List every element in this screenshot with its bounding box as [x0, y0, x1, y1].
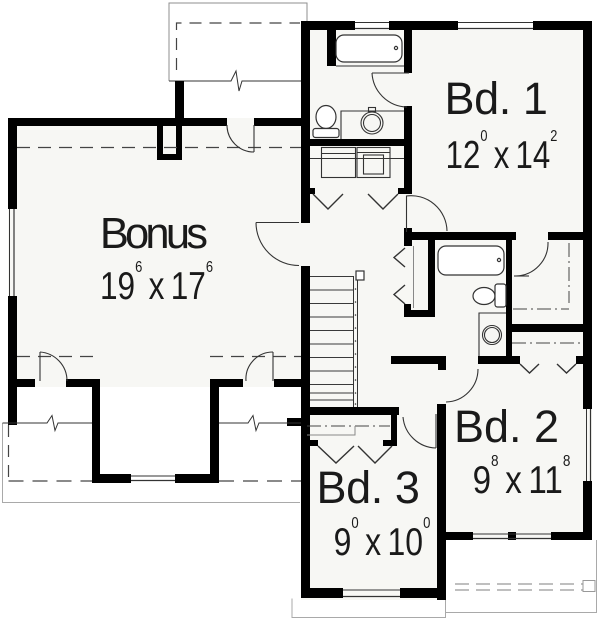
svg-text:196 x 176: 196 x 176: [100, 259, 213, 308]
svg-text:Bd. 3: Bd. 3: [316, 462, 419, 513]
svg-text:120 x 142: 120 x 142: [446, 128, 558, 177]
svg-text:90 x 100: 90 x 100: [334, 515, 431, 564]
svg-text:Bd. 1: Bd. 1: [444, 73, 547, 124]
svg-text:98 x 118: 98 x 118: [473, 453, 571, 502]
svg-text:Bd. 2: Bd. 2: [454, 401, 559, 452]
svg-text:Bonus: Bonus: [100, 210, 207, 258]
